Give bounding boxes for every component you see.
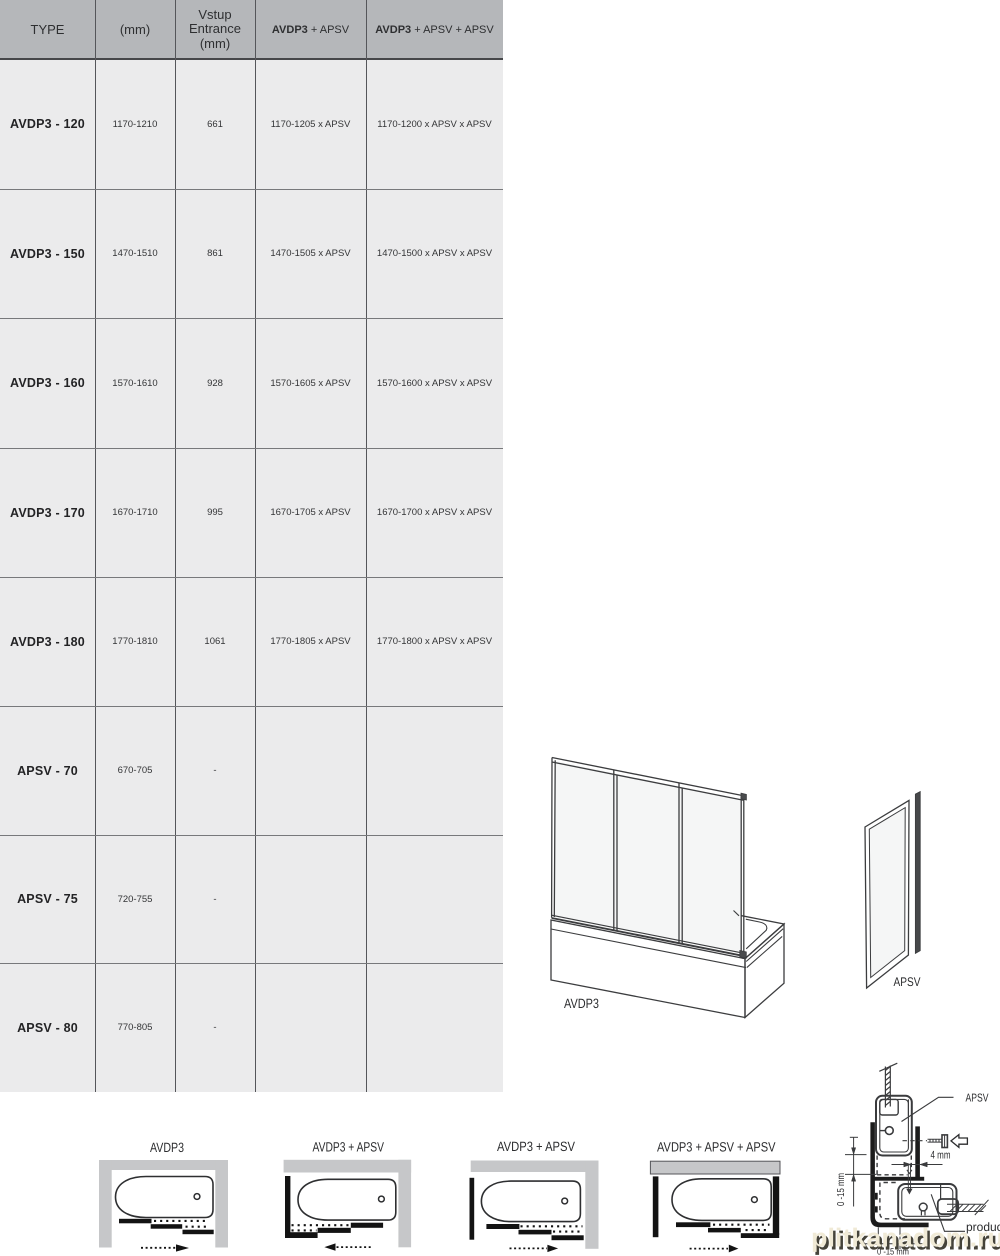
svg-text:AVDP3 + APSV: AVDP3 + APSV <box>497 1139 575 1154</box>
svg-text:APSV: APSV <box>966 1093 989 1105</box>
svg-text:AVDP3 + APSV + APSV: AVDP3 + APSV + APSV <box>657 1140 776 1155</box>
svg-text:4 mm: 4 mm <box>931 1150 951 1162</box>
svg-text:AVDP3 + APSV: AVDP3 + APSV <box>313 1140 385 1155</box>
svg-text:AVDP3: AVDP3 <box>150 1140 184 1155</box>
svg-text:AVDP3: AVDP3 <box>564 996 599 1011</box>
svg-text:0 -15 mm: 0 -15 mm <box>836 1173 847 1206</box>
svg-text:APSV: APSV <box>894 975 922 989</box>
svg-text:plitkanadom.ru: plitkanadom.ru <box>811 1223 1000 1253</box>
